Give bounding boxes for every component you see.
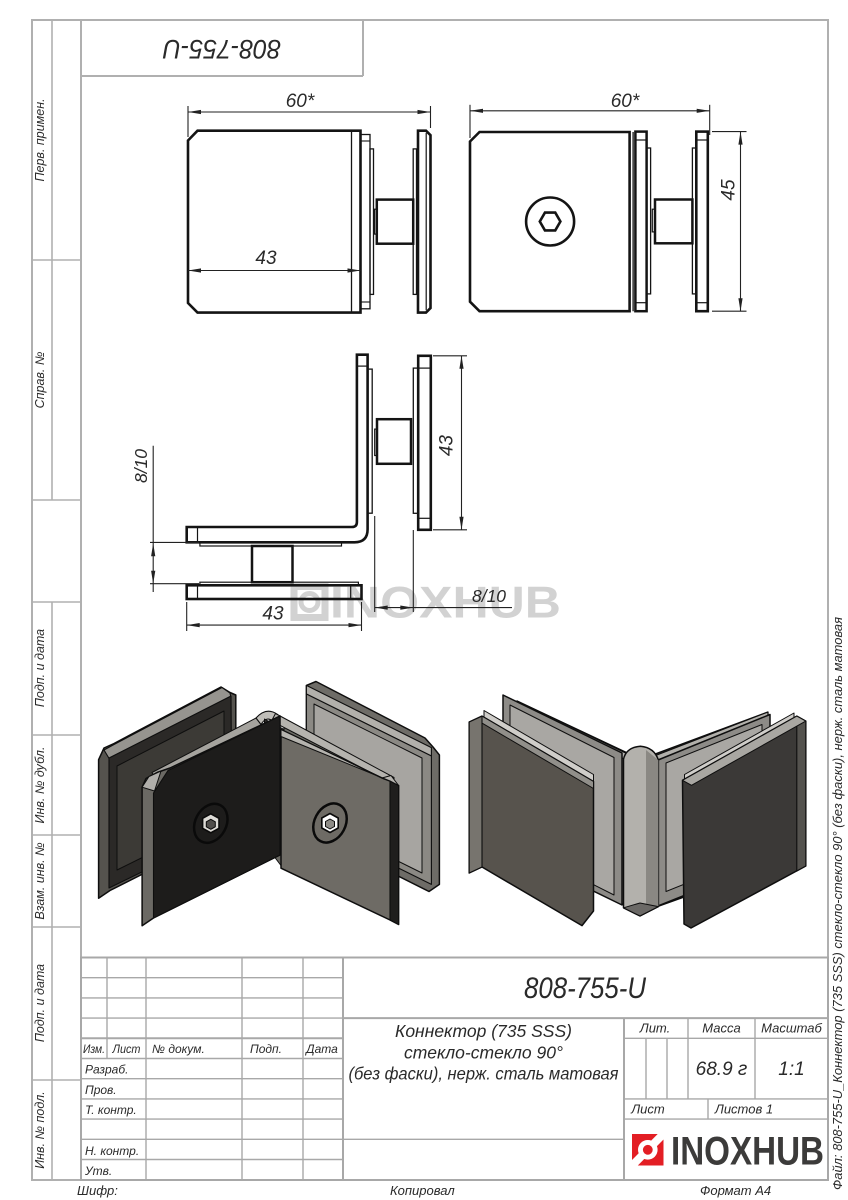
svg-text:Листов 1: Листов 1 bbox=[714, 1102, 773, 1117]
svg-text:Масса: Масса bbox=[702, 1021, 740, 1036]
svg-text:Т. контр.: Т. контр. bbox=[85, 1103, 137, 1117]
svg-text:Лист: Лист bbox=[112, 1042, 141, 1056]
svg-text:43: 43 bbox=[262, 604, 284, 625]
svg-text:INOXHUB: INOXHUB bbox=[330, 579, 561, 628]
svg-text:1:1: 1:1 bbox=[778, 1059, 804, 1080]
svg-text:68.9 г: 68.9 г bbox=[696, 1059, 748, 1080]
svg-text:43: 43 bbox=[437, 435, 458, 457]
svg-text:8/10: 8/10 bbox=[472, 586, 506, 606]
svg-text:8/10: 8/10 bbox=[131, 449, 151, 483]
svg-text:60*: 60* bbox=[286, 91, 315, 112]
svg-text:Справ. №: Справ. № bbox=[33, 351, 47, 408]
svg-text:стекло-стекло 90°: стекло-стекло 90° bbox=[404, 1043, 563, 1063]
svg-text:№ докум.: № докум. bbox=[152, 1042, 205, 1056]
svg-text:Изм.: Изм. bbox=[83, 1042, 105, 1056]
svg-text:43: 43 bbox=[255, 248, 277, 269]
svg-text:60*: 60* bbox=[611, 91, 640, 112]
svg-text:Копировал: Копировал bbox=[390, 1183, 455, 1198]
svg-text:Инв. № дубл.: Инв. № дубл. bbox=[33, 747, 47, 824]
svg-text:(без фаски), нерж. сталь матов: (без фаски), нерж. сталь матовая bbox=[349, 1064, 619, 1084]
svg-text:808-755-U: 808-755-U bbox=[163, 34, 281, 64]
svg-text:Пров.: Пров. bbox=[85, 1083, 117, 1097]
svg-text:Разраб.: Разраб. bbox=[85, 1063, 128, 1077]
svg-text:Утв.: Утв. bbox=[84, 1164, 112, 1178]
svg-text:Подп. и дата: Подп. и дата bbox=[33, 629, 47, 707]
svg-text:45: 45 bbox=[719, 179, 740, 201]
svg-text:Подп.: Подп. bbox=[250, 1042, 282, 1056]
svg-text:Лит.: Лит. bbox=[639, 1021, 670, 1036]
svg-text:Подп. и дата: Подп. и дата bbox=[33, 964, 47, 1042]
svg-text:Файл: 808-755-U_Коннектор (735: Файл: 808-755-U_Коннектор (735 SSS) стек… bbox=[831, 617, 845, 1190]
svg-text:Инв. № подл.: Инв. № подл. bbox=[33, 1091, 47, 1169]
svg-text:Коннектор (735 SSS): Коннектор (735 SSS) bbox=[395, 1021, 572, 1041]
svg-text:Перв. примен.: Перв. примен. bbox=[33, 98, 47, 181]
svg-text:Формат А4: Формат А4 bbox=[700, 1183, 771, 1198]
svg-text:Лист: Лист bbox=[630, 1102, 665, 1117]
svg-text:Н. контр.: Н. контр. bbox=[85, 1144, 139, 1158]
svg-text:Дата: Дата bbox=[304, 1042, 338, 1056]
svg-text:INOXHUB: INOXHUB bbox=[671, 1130, 824, 1174]
svg-text:Масштаб: Масштаб bbox=[761, 1021, 822, 1036]
svg-text:808-755-U: 808-755-U bbox=[524, 972, 646, 1005]
svg-text:Взам. инв. №: Взам. инв. № bbox=[33, 842, 47, 920]
svg-text:Шифр:: Шифр: bbox=[77, 1183, 118, 1198]
